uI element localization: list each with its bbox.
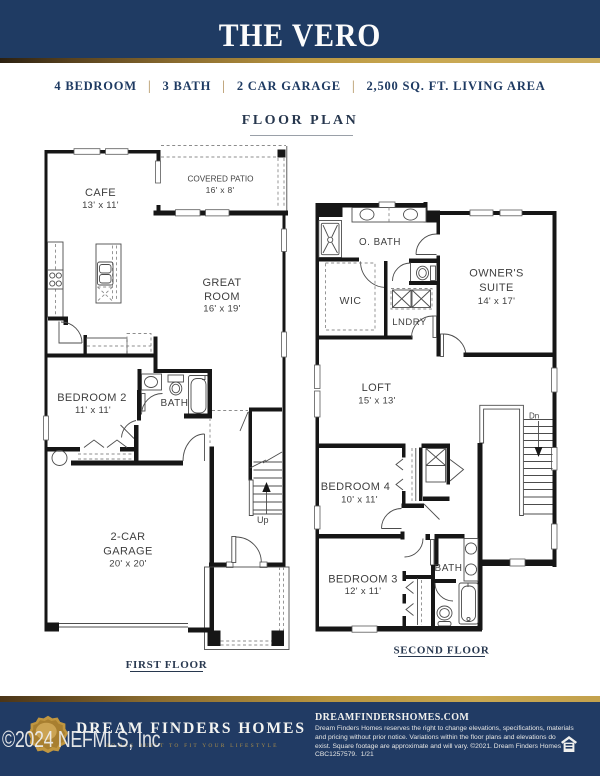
svg-text:WIC: WIC xyxy=(340,295,362,307)
svg-text:FIRST FLOOR: FIRST FLOOR xyxy=(126,659,208,671)
svg-text:Up: Up xyxy=(257,515,269,525)
svg-text:COVERED PATIO: COVERED PATIO xyxy=(187,175,253,184)
svg-text:LNDRY: LNDRY xyxy=(392,317,427,328)
svg-text:12' x 11': 12' x 11' xyxy=(345,586,382,597)
svg-text:16' x 19': 16' x 19' xyxy=(203,304,241,315)
svg-text:GARAGE: GARAGE xyxy=(103,546,152,558)
svg-text:O. BATH: O. BATH xyxy=(359,237,401,248)
svg-text:BATH: BATH xyxy=(161,398,189,409)
svg-text:15' x 13': 15' x 13' xyxy=(358,396,396,407)
svg-text:BEDROOM 2: BEDROOM 2 xyxy=(57,392,127,404)
svg-text:ROOM: ROOM xyxy=(204,291,240,303)
svg-text:14' x 17': 14' x 17' xyxy=(478,296,516,307)
svg-text:SUITE: SUITE xyxy=(479,282,513,294)
svg-text:Dn: Dn xyxy=(529,412,539,421)
svg-text:SECOND FLOOR: SECOND FLOOR xyxy=(393,645,489,657)
svg-text:BEDROOM 3: BEDROOM 3 xyxy=(328,574,398,586)
svg-text:10' x 11': 10' x 11' xyxy=(341,495,378,506)
svg-text:BATH: BATH xyxy=(435,563,463,574)
svg-text:20' x 20': 20' x 20' xyxy=(109,559,147,570)
svg-text:BEDROOM 4: BEDROOM 4 xyxy=(321,481,391,493)
svg-text:CAFE: CAFE xyxy=(85,187,116,199)
svg-text:OWNER'S: OWNER'S xyxy=(469,268,523,280)
svg-text:LOFT: LOFT xyxy=(362,382,392,394)
svg-text:2-CAR: 2-CAR xyxy=(110,531,145,543)
svg-text:11' x 11': 11' x 11' xyxy=(75,405,111,416)
svg-text:13' x 11': 13' x 11' xyxy=(82,200,119,211)
svg-text:16' x 8': 16' x 8' xyxy=(206,185,235,195)
svg-text:GREAT: GREAT xyxy=(202,277,241,289)
